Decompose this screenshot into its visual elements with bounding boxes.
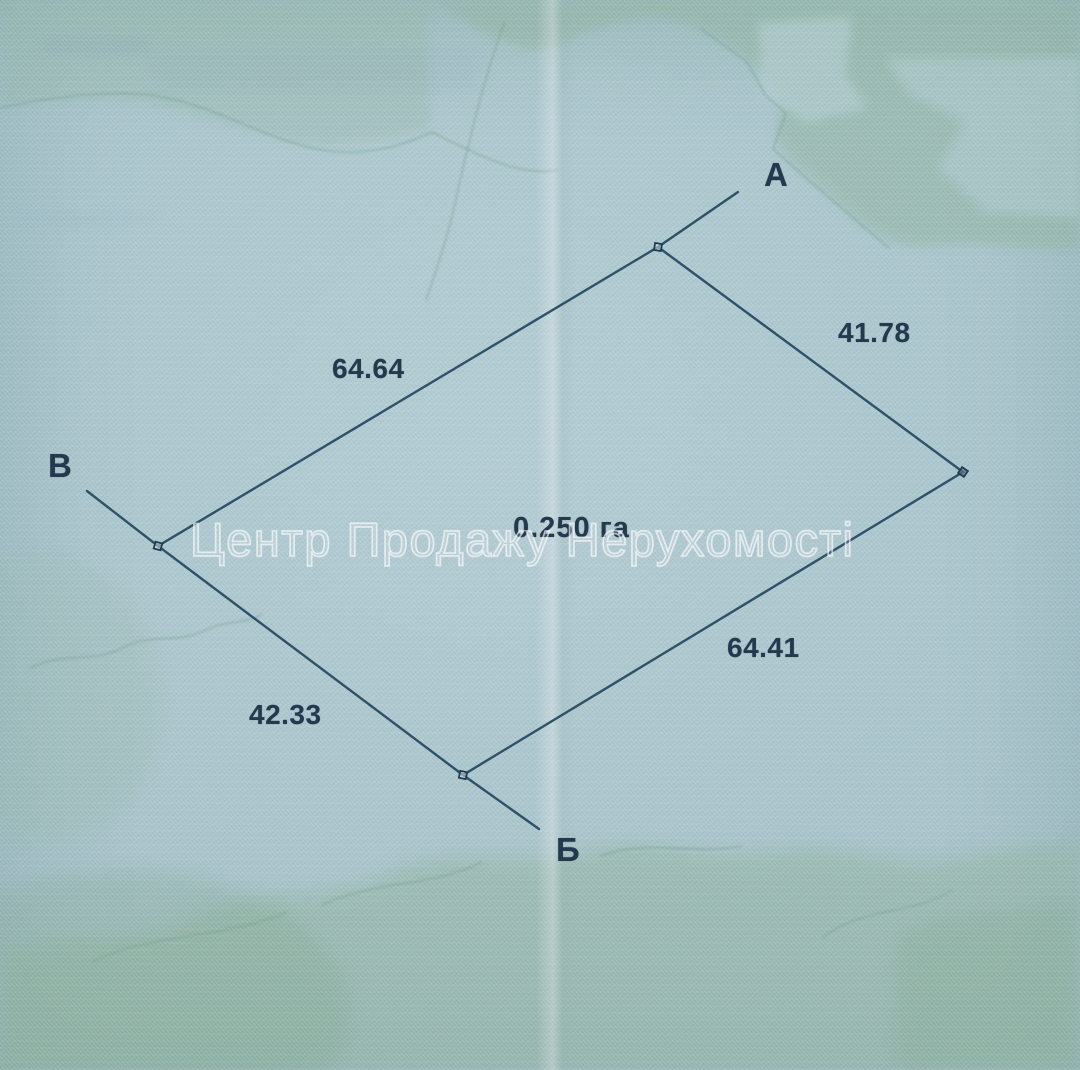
vertex-marker-v (154, 542, 163, 551)
parcel-diagram (0, 0, 1080, 1070)
leader-line-vertex-b (463, 775, 539, 829)
vertex-marker-b (459, 771, 467, 779)
scanned-land-deed-page: А В Б 64.64 41.78 64.41 42.33 0.250 га Ц… (0, 0, 1080, 1070)
vertex-marker-a (654, 243, 662, 251)
leader-line-vertex-v (87, 491, 158, 546)
leader-line-vertex-a (658, 192, 738, 247)
parcel-boundary (158, 247, 963, 775)
